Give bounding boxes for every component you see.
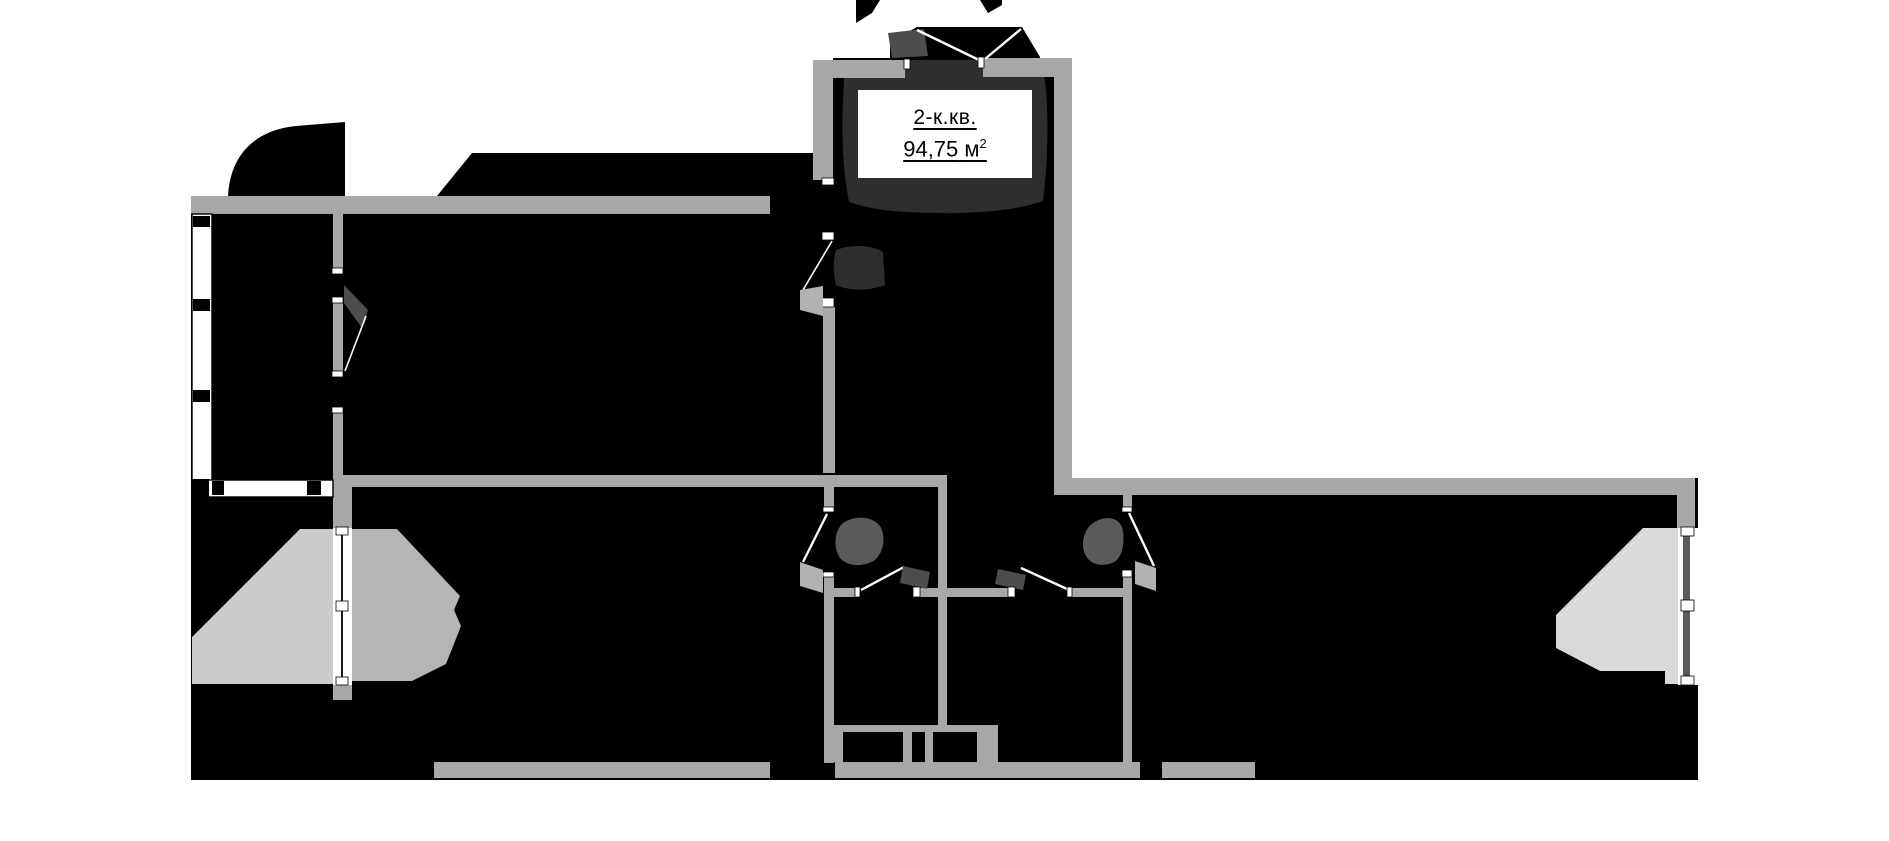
railing-post — [193, 216, 210, 227]
door-jamb-tick — [904, 59, 910, 69]
wall-hall-right — [1054, 77, 1072, 478]
wall-vestibule-left — [813, 60, 905, 78]
door-jamb-tick — [822, 178, 834, 185]
left-wing-plate — [191, 196, 835, 487]
door-jamb-tick — [823, 572, 834, 577]
unit-area-value: 94,75 — [903, 136, 958, 161]
wall-wc-left-bottom — [824, 577, 834, 763]
wall-bottom-right — [1162, 762, 1255, 778]
window-bay-post-2 — [903, 732, 912, 762]
wall-bath-seg-3 — [1072, 588, 1123, 597]
wall-wc-divider — [938, 487, 947, 725]
railing-post — [212, 481, 224, 495]
entry-wall-mark-right — [980, 0, 1002, 13]
door-jamb-tick — [822, 298, 834, 307]
window-tick — [1681, 527, 1694, 536]
wall-top-left — [191, 196, 770, 214]
door-jamb-tick — [855, 587, 860, 597]
top-left-blob — [228, 122, 345, 196]
wall-bottom-left — [434, 762, 770, 778]
unit-area-text: 94,75 м2 — [903, 136, 987, 162]
top-band-plate — [437, 153, 833, 196]
door-jamb-tick — [913, 587, 920, 597]
entry-wall-mark-left — [856, 0, 880, 23]
railing-post — [193, 299, 210, 311]
wall-bottom-center — [835, 762, 1140, 778]
window-tick — [332, 268, 343, 274]
unit-label-box[interactable]: 2-к.кв. 94,75 м2 — [858, 90, 1032, 178]
window-tick — [332, 297, 343, 303]
door-jamb-tick — [1122, 507, 1132, 512]
wall-left-ext-3 — [333, 413, 343, 478]
floor-plan-page: 2-к.кв. 94,75 м2 — [0, 0, 1889, 841]
wall-bath-seg-2 — [920, 588, 1008, 597]
window-bay-post-4 — [977, 732, 998, 762]
railing-post-corner — [191, 479, 209, 497]
wall-vestibule-right — [983, 58, 1072, 77]
wall-hall-left-lower — [823, 307, 835, 473]
door-jamb-tick — [1122, 570, 1132, 577]
wall-right-corner — [1677, 495, 1695, 528]
wall-left-ext-2 — [333, 303, 343, 373]
wall-left-ext-1 — [333, 214, 343, 270]
door-jamb-tick — [1008, 587, 1015, 597]
door-jamb-tick — [822, 232, 834, 240]
wall-left-ext-stub-bottom — [333, 684, 352, 700]
window-tick — [336, 677, 348, 685]
railing-post — [193, 390, 210, 402]
hall-cabinet — [834, 246, 885, 289]
railing-vertical — [192, 214, 212, 497]
unit-area-sup: 2 — [980, 136, 987, 151]
wall-wc-right-bottom — [1123, 577, 1132, 775]
door-jamb-tick — [1067, 587, 1072, 597]
window-bay-post-3 — [925, 732, 933, 762]
wall-horizontal-main — [333, 475, 947, 487]
window-tick — [336, 527, 348, 535]
railing-post — [307, 481, 321, 495]
toilet-icon — [835, 518, 883, 565]
window-bay-post-1 — [834, 732, 843, 762]
window-tick — [1681, 676, 1694, 685]
wall-top-right — [1054, 478, 1695, 495]
door-jamb-tick — [978, 57, 984, 68]
unit-type-text: 2-к.кв. — [913, 106, 976, 130]
unit-area-unit: м — [964, 136, 979, 161]
window-tick — [336, 601, 348, 611]
wall-hall-left-upper — [813, 62, 833, 180]
window-tick — [1681, 600, 1694, 611]
window-bay-rail — [833, 725, 998, 732]
wall-bath-seg-1 — [833, 588, 855, 597]
window-tick — [332, 371, 343, 377]
window-tick — [332, 407, 343, 413]
door-jamb-tick — [823, 507, 834, 512]
